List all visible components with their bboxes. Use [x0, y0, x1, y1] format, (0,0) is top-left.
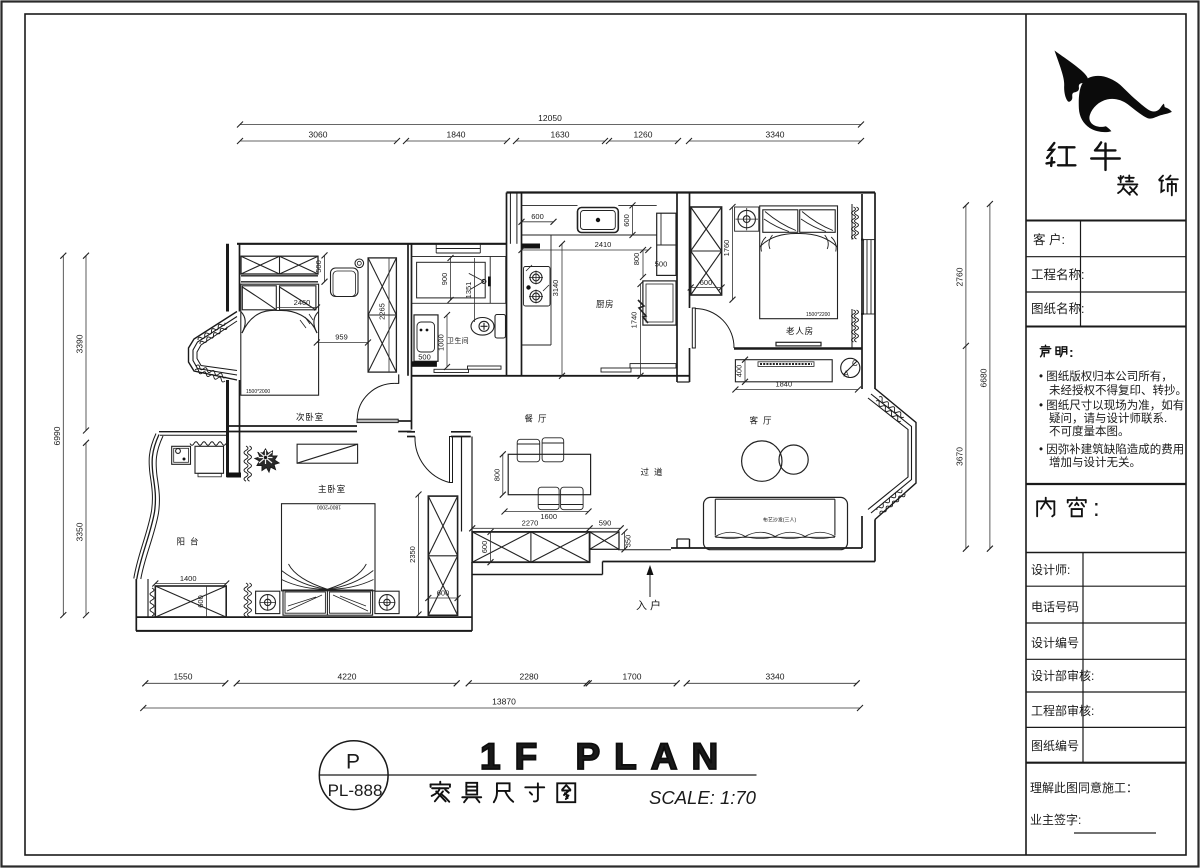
svg-text:设计部审核:: 设计部审核: — [1031, 668, 1094, 683]
svg-text:餐厅: 餐厅 — [524, 414, 551, 424]
svg-text:A: A — [844, 370, 850, 379]
svg-text:布艺沙发(三人): 布艺沙发(三人) — [763, 517, 797, 524]
svg-text:PL-888: PL-888 — [328, 781, 383, 800]
svg-text:2270: 2270 — [522, 518, 539, 527]
svg-text::: : — [1093, 495, 1100, 522]
svg-text:1840: 1840 — [447, 130, 466, 140]
svg-text:2280: 2280 — [520, 672, 539, 682]
svg-text:C: C — [852, 359, 858, 368]
svg-text:2265: 2265 — [378, 303, 387, 320]
svg-text:过道: 过道 — [640, 467, 667, 477]
svg-text:图纸编号: 图纸编号 — [1031, 738, 1079, 753]
svg-text:6990: 6990 — [52, 426, 62, 445]
svg-text:600: 600 — [196, 595, 205, 608]
svg-text:1840: 1840 — [775, 380, 792, 389]
svg-text:设计编号: 设计编号 — [1031, 635, 1079, 650]
svg-text:1000: 1000 — [437, 334, 446, 351]
svg-text:3340: 3340 — [766, 672, 785, 682]
svg-text:2760: 2760 — [954, 267, 964, 286]
svg-text:设计师:: 设计师: — [1031, 563, 1070, 577]
svg-text:1351: 1351 — [464, 282, 473, 299]
svg-text:600: 600 — [622, 214, 631, 227]
svg-text:350: 350 — [624, 535, 633, 548]
svg-text:未经授权不得复印、转抄。: 未经授权不得复印、转抄。 — [1049, 383, 1187, 397]
svg-text:卫生间: 卫生间 — [447, 336, 469, 345]
svg-text:500: 500 — [655, 260, 668, 269]
svg-text:入户: 入户 — [636, 598, 664, 612]
svg-text:业主签字:: 业主签字: — [1030, 812, 1081, 827]
svg-text:3140: 3140 — [551, 280, 560, 297]
svg-text:不可度量本图。: 不可度量本图。 — [1049, 424, 1130, 438]
svg-text:工程部审核:: 工程部审核: — [1031, 703, 1094, 718]
svg-text:4220: 4220 — [338, 672, 357, 682]
svg-text:1550: 1550 — [174, 672, 193, 682]
svg-text:老人房: 老人房 — [786, 326, 814, 336]
svg-text:3350: 3350 — [75, 522, 85, 541]
svg-text:1500*2000: 1500*2000 — [246, 389, 270, 395]
svg-text:1800*2000: 1800*2000 — [317, 504, 341, 510]
svg-text:1600: 1600 — [540, 512, 557, 521]
svg-text:阳台: 阳台 — [176, 537, 203, 547]
svg-text:厨房: 厨房 — [596, 299, 614, 309]
svg-text:800: 800 — [632, 253, 641, 266]
svg-text:1F PLAN: 1F PLAN — [480, 736, 732, 777]
svg-text:电话号码: 电话号码 — [1031, 600, 1079, 614]
svg-text:理解此图同意施工：: 理解此图同意施工： — [1030, 780, 1138, 795]
svg-text:6680: 6680 — [978, 368, 988, 387]
svg-text:500: 500 — [314, 260, 323, 273]
svg-text::: : — [1069, 344, 1074, 360]
svg-text:2460: 2460 — [294, 298, 311, 307]
svg-text:3670: 3670 — [954, 447, 964, 466]
svg-text:3060: 3060 — [309, 130, 328, 140]
svg-text:P: P — [346, 751, 360, 774]
svg-text:900: 900 — [440, 273, 449, 286]
svg-text:1260: 1260 — [634, 130, 653, 140]
svg-text:1700: 1700 — [623, 672, 642, 682]
svg-text:400: 400 — [735, 365, 744, 378]
svg-text:• 图纸版权归本公司所有，: • 图纸版权归本公司所有， — [1039, 369, 1173, 383]
svg-text:600: 600 — [480, 541, 489, 554]
svg-text:13870: 13870 — [492, 697, 516, 707]
svg-text:增加与设计无关。: 增加与设计无关。 — [1049, 455, 1141, 469]
svg-text:客厅: 客厅 — [749, 416, 776, 426]
svg-text:2350: 2350 — [408, 546, 417, 563]
svg-text:590: 590 — [599, 518, 612, 527]
svg-text:1500*2200: 1500*2200 — [806, 312, 830, 318]
svg-text:工程名称:: 工程名称: — [1031, 267, 1084, 282]
svg-text:12050: 12050 — [538, 113, 562, 123]
svg-text:600: 600 — [437, 589, 450, 598]
svg-text:2410: 2410 — [595, 240, 612, 249]
svg-text:959: 959 — [335, 333, 348, 342]
svg-text:次卧室: 次卧室 — [296, 412, 324, 422]
svg-text:1740: 1740 — [630, 312, 639, 329]
svg-text:1760: 1760 — [722, 240, 731, 257]
svg-text:客 户:: 客 户: — [1033, 232, 1065, 247]
svg-text:主卧室: 主卧室 — [318, 484, 346, 494]
svg-text:3340: 3340 — [766, 130, 785, 140]
svg-text:图纸名称:: 图纸名称: — [1031, 301, 1084, 316]
svg-text:SCALE: 1:70: SCALE: 1:70 — [649, 787, 757, 808]
svg-text:疑问，请与设计师联系.: 疑问，请与设计师联系. — [1049, 411, 1167, 425]
svg-text:1630: 1630 — [551, 130, 570, 140]
svg-text:• 图纸尺寸以现场为准，如有: • 图纸尺寸以现场为准，如有 — [1039, 398, 1184, 412]
svg-text:• 因弥补建筑缺陷造成的费用: • 因弥补建筑缺陷造成的费用 — [1039, 442, 1184, 456]
svg-text:800: 800 — [492, 469, 501, 482]
svg-text:1400: 1400 — [180, 574, 197, 583]
svg-text:600: 600 — [531, 212, 544, 221]
svg-text:500: 500 — [418, 353, 431, 362]
svg-text:600: 600 — [700, 278, 713, 287]
svg-text:3390: 3390 — [75, 334, 85, 353]
